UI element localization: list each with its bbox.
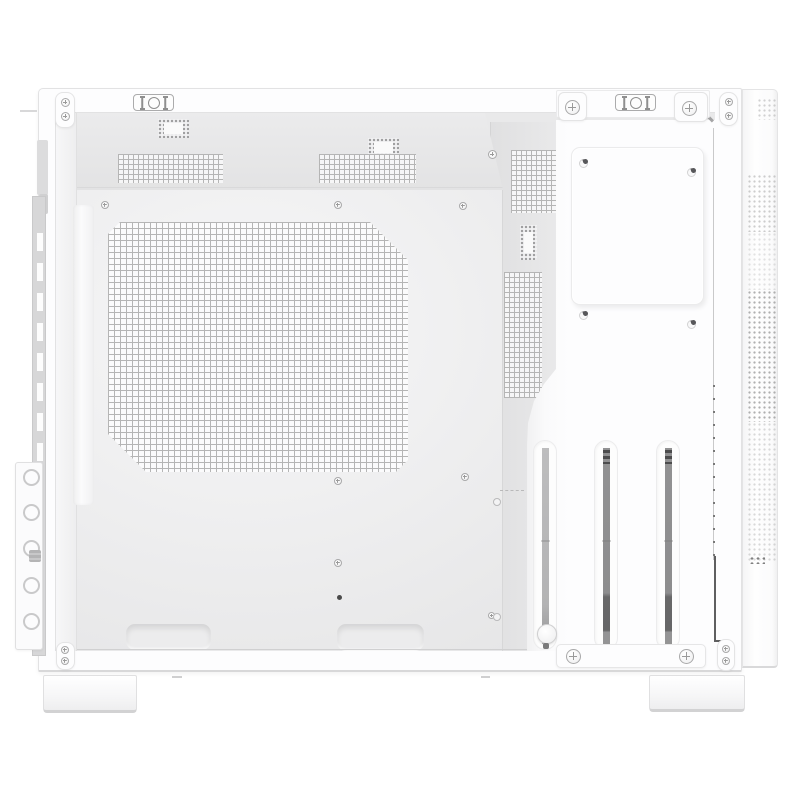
cable-tie-slot-vertical	[520, 225, 537, 260]
case-foot	[649, 675, 745, 712]
ceiling-vent-mesh	[118, 154, 223, 183]
tab-screw	[725, 98, 733, 106]
panel-seam-dots	[713, 385, 715, 557]
latch-bar	[622, 96, 627, 110]
interior-left-edge	[55, 113, 56, 651]
plate-screw	[687, 168, 696, 177]
tab-screw	[725, 112, 733, 120]
plate-screw	[579, 311, 588, 320]
standoff-screw	[461, 473, 469, 481]
ceiling-edge	[56, 187, 503, 188]
front-vent-end-dots	[749, 556, 765, 564]
tab-screw	[61, 657, 69, 665]
rear-wall-vent-mesh	[504, 272, 542, 398]
standoff-screw	[334, 559, 342, 567]
bracket-hole	[23, 469, 40, 486]
bracket-clip	[29, 550, 41, 562]
latch-bar	[645, 96, 650, 110]
bracket-hole	[23, 504, 40, 521]
front-fan-channel	[73, 205, 94, 505]
ceiling-vent-mesh	[319, 154, 416, 183]
tray-vent-mesh	[108, 222, 408, 472]
corner-tab	[717, 639, 735, 671]
tie-slot-opening	[164, 123, 183, 134]
latch-bar	[163, 96, 168, 110]
top-latch-cutout	[615, 94, 656, 111]
bracket-hole	[23, 613, 40, 630]
mounting-plate	[571, 147, 704, 305]
slot-latch-nub	[543, 643, 549, 649]
rear-cable-bracket	[15, 462, 43, 650]
bracket-hole	[23, 577, 40, 594]
plate-screw	[687, 320, 696, 329]
standoff-screw	[488, 150, 497, 159]
thumbscrew-hole	[537, 624, 557, 644]
top-latch-cutout	[133, 94, 174, 111]
plate-screw	[579, 159, 588, 168]
panel-seam-dark	[714, 556, 716, 642]
slot-cover-bar	[665, 448, 672, 644]
panel-seam-dashed	[500, 490, 524, 491]
expansion-slot	[656, 440, 680, 650]
tie-slot-opening	[524, 232, 533, 253]
slot-cover-bar	[603, 448, 610, 644]
rail-dash	[172, 676, 182, 678]
tab-screw	[61, 646, 69, 654]
latch-ring	[630, 97, 642, 109]
thumbscrew	[565, 100, 580, 115]
tab-screw	[722, 657, 730, 665]
standoff-screw	[334, 201, 342, 209]
thumbscrew	[682, 101, 697, 116]
tray-cutout	[126, 624, 211, 650]
case-interior	[56, 113, 715, 651]
screw-hole	[493, 498, 501, 506]
standoff-screw	[334, 477, 342, 485]
latch-bar	[140, 96, 145, 110]
case-foot	[43, 675, 137, 713]
standoff-screw	[101, 201, 109, 209]
rear-wall-vent-mesh	[511, 150, 559, 213]
rear-pin	[20, 110, 37, 112]
expansion-slot	[594, 440, 618, 650]
rail-dash	[481, 676, 490, 678]
pc-case-photo	[0, 0, 800, 800]
standoff-screw	[459, 202, 467, 210]
front-vent-segment	[747, 422, 777, 562]
rear-tab	[37, 140, 48, 195]
front-vent-segment	[747, 232, 777, 290]
latch-ring	[148, 97, 160, 109]
tab-screw	[722, 645, 730, 653]
expansion-slot	[533, 440, 557, 650]
front-panel-edge	[742, 89, 778, 668]
tab-screw	[61, 98, 70, 107]
cable-tie-slot	[158, 119, 189, 138]
thumbscrew	[566, 649, 581, 664]
thumbscrew	[679, 649, 694, 664]
screw-hole	[493, 613, 501, 621]
tray-cutout	[337, 624, 424, 651]
tray-bottom-edge	[77, 649, 527, 650]
tie-slot-opening	[374, 142, 393, 153]
front-vent-segment	[747, 174, 777, 232]
front-vent-segment	[747, 290, 777, 422]
tray-dot	[337, 595, 342, 600]
slot-cover-bar	[542, 448, 549, 644]
front-vent-cluster-top	[757, 98, 777, 120]
tab-screw	[61, 112, 70, 121]
